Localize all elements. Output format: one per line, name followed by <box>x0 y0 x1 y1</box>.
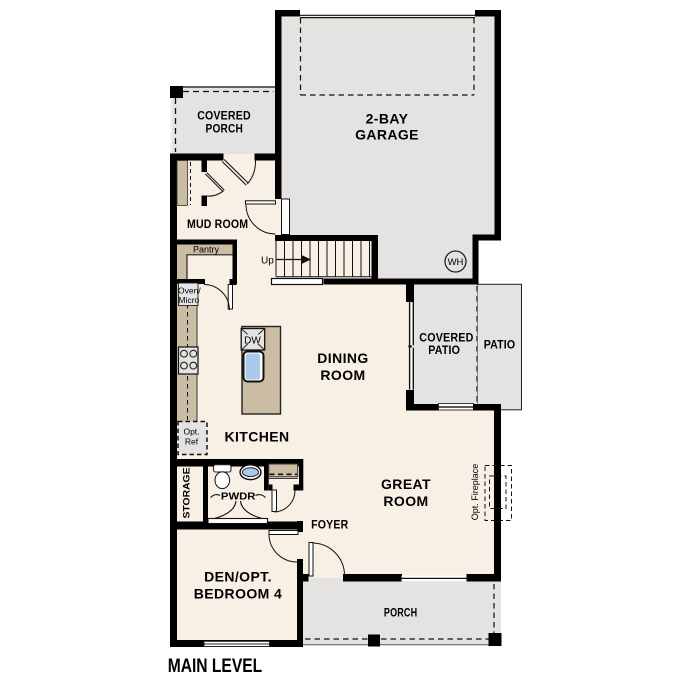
svg-text:PWDR: PWDR <box>221 490 256 502</box>
svg-text:BEDROOM 4: BEDROOM 4 <box>194 586 282 602</box>
svg-text:PATIO: PATIO <box>428 343 460 357</box>
svg-text:Pantry: Pantry <box>193 245 220 255</box>
svg-text:ROOM: ROOM <box>320 367 365 383</box>
svg-text:MAIN LEVEL: MAIN LEVEL <box>168 655 263 677</box>
svg-text:MUD ROOM: MUD ROOM <box>187 217 248 231</box>
svg-text:GARAGE: GARAGE <box>355 127 419 143</box>
svg-text:COVERED: COVERED <box>197 109 251 123</box>
svg-text:2-BAY: 2-BAY <box>366 111 409 127</box>
svg-text:Opt. Fireplace: Opt. Fireplace <box>470 464 480 521</box>
svg-text:FOYER: FOYER <box>311 517 348 531</box>
svg-text:Up: Up <box>261 256 274 267</box>
svg-text:PATIO: PATIO <box>484 337 516 351</box>
svg-text:DW: DW <box>244 336 261 347</box>
svg-text:PORCH: PORCH <box>384 606 417 620</box>
svg-text:DINING: DINING <box>317 350 368 366</box>
svg-text:STORAGE: STORAGE <box>182 468 193 519</box>
svg-text:GREAT: GREAT <box>381 476 431 492</box>
svg-text:Opt.: Opt. <box>183 427 199 437</box>
svg-text:PORCH: PORCH <box>206 122 244 136</box>
svg-text:Oven/: Oven/ <box>178 286 201 296</box>
svg-text:Micro: Micro <box>179 295 200 305</box>
svg-text:ROOM: ROOM <box>383 493 428 509</box>
svg-text:Ref: Ref <box>185 437 199 447</box>
svg-text:WH: WH <box>448 257 464 268</box>
svg-text:KITCHEN: KITCHEN <box>224 429 289 445</box>
svg-text:DEN/OPT.: DEN/OPT. <box>204 569 272 585</box>
